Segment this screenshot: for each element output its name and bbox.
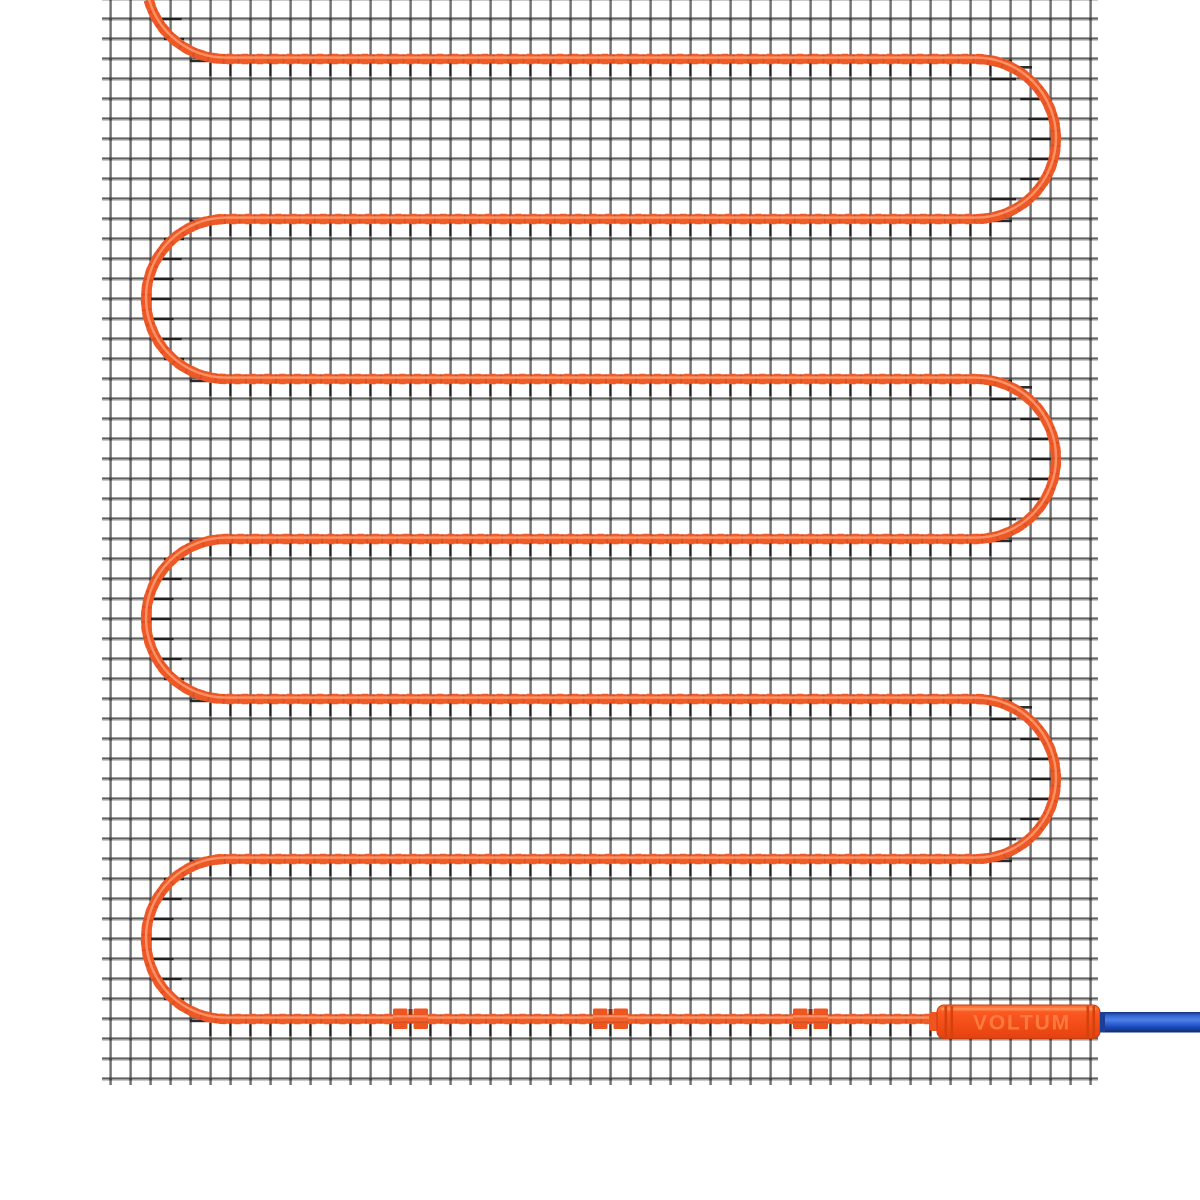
svg-text:VOLTUM: VOLTUM — [973, 1012, 1071, 1035]
